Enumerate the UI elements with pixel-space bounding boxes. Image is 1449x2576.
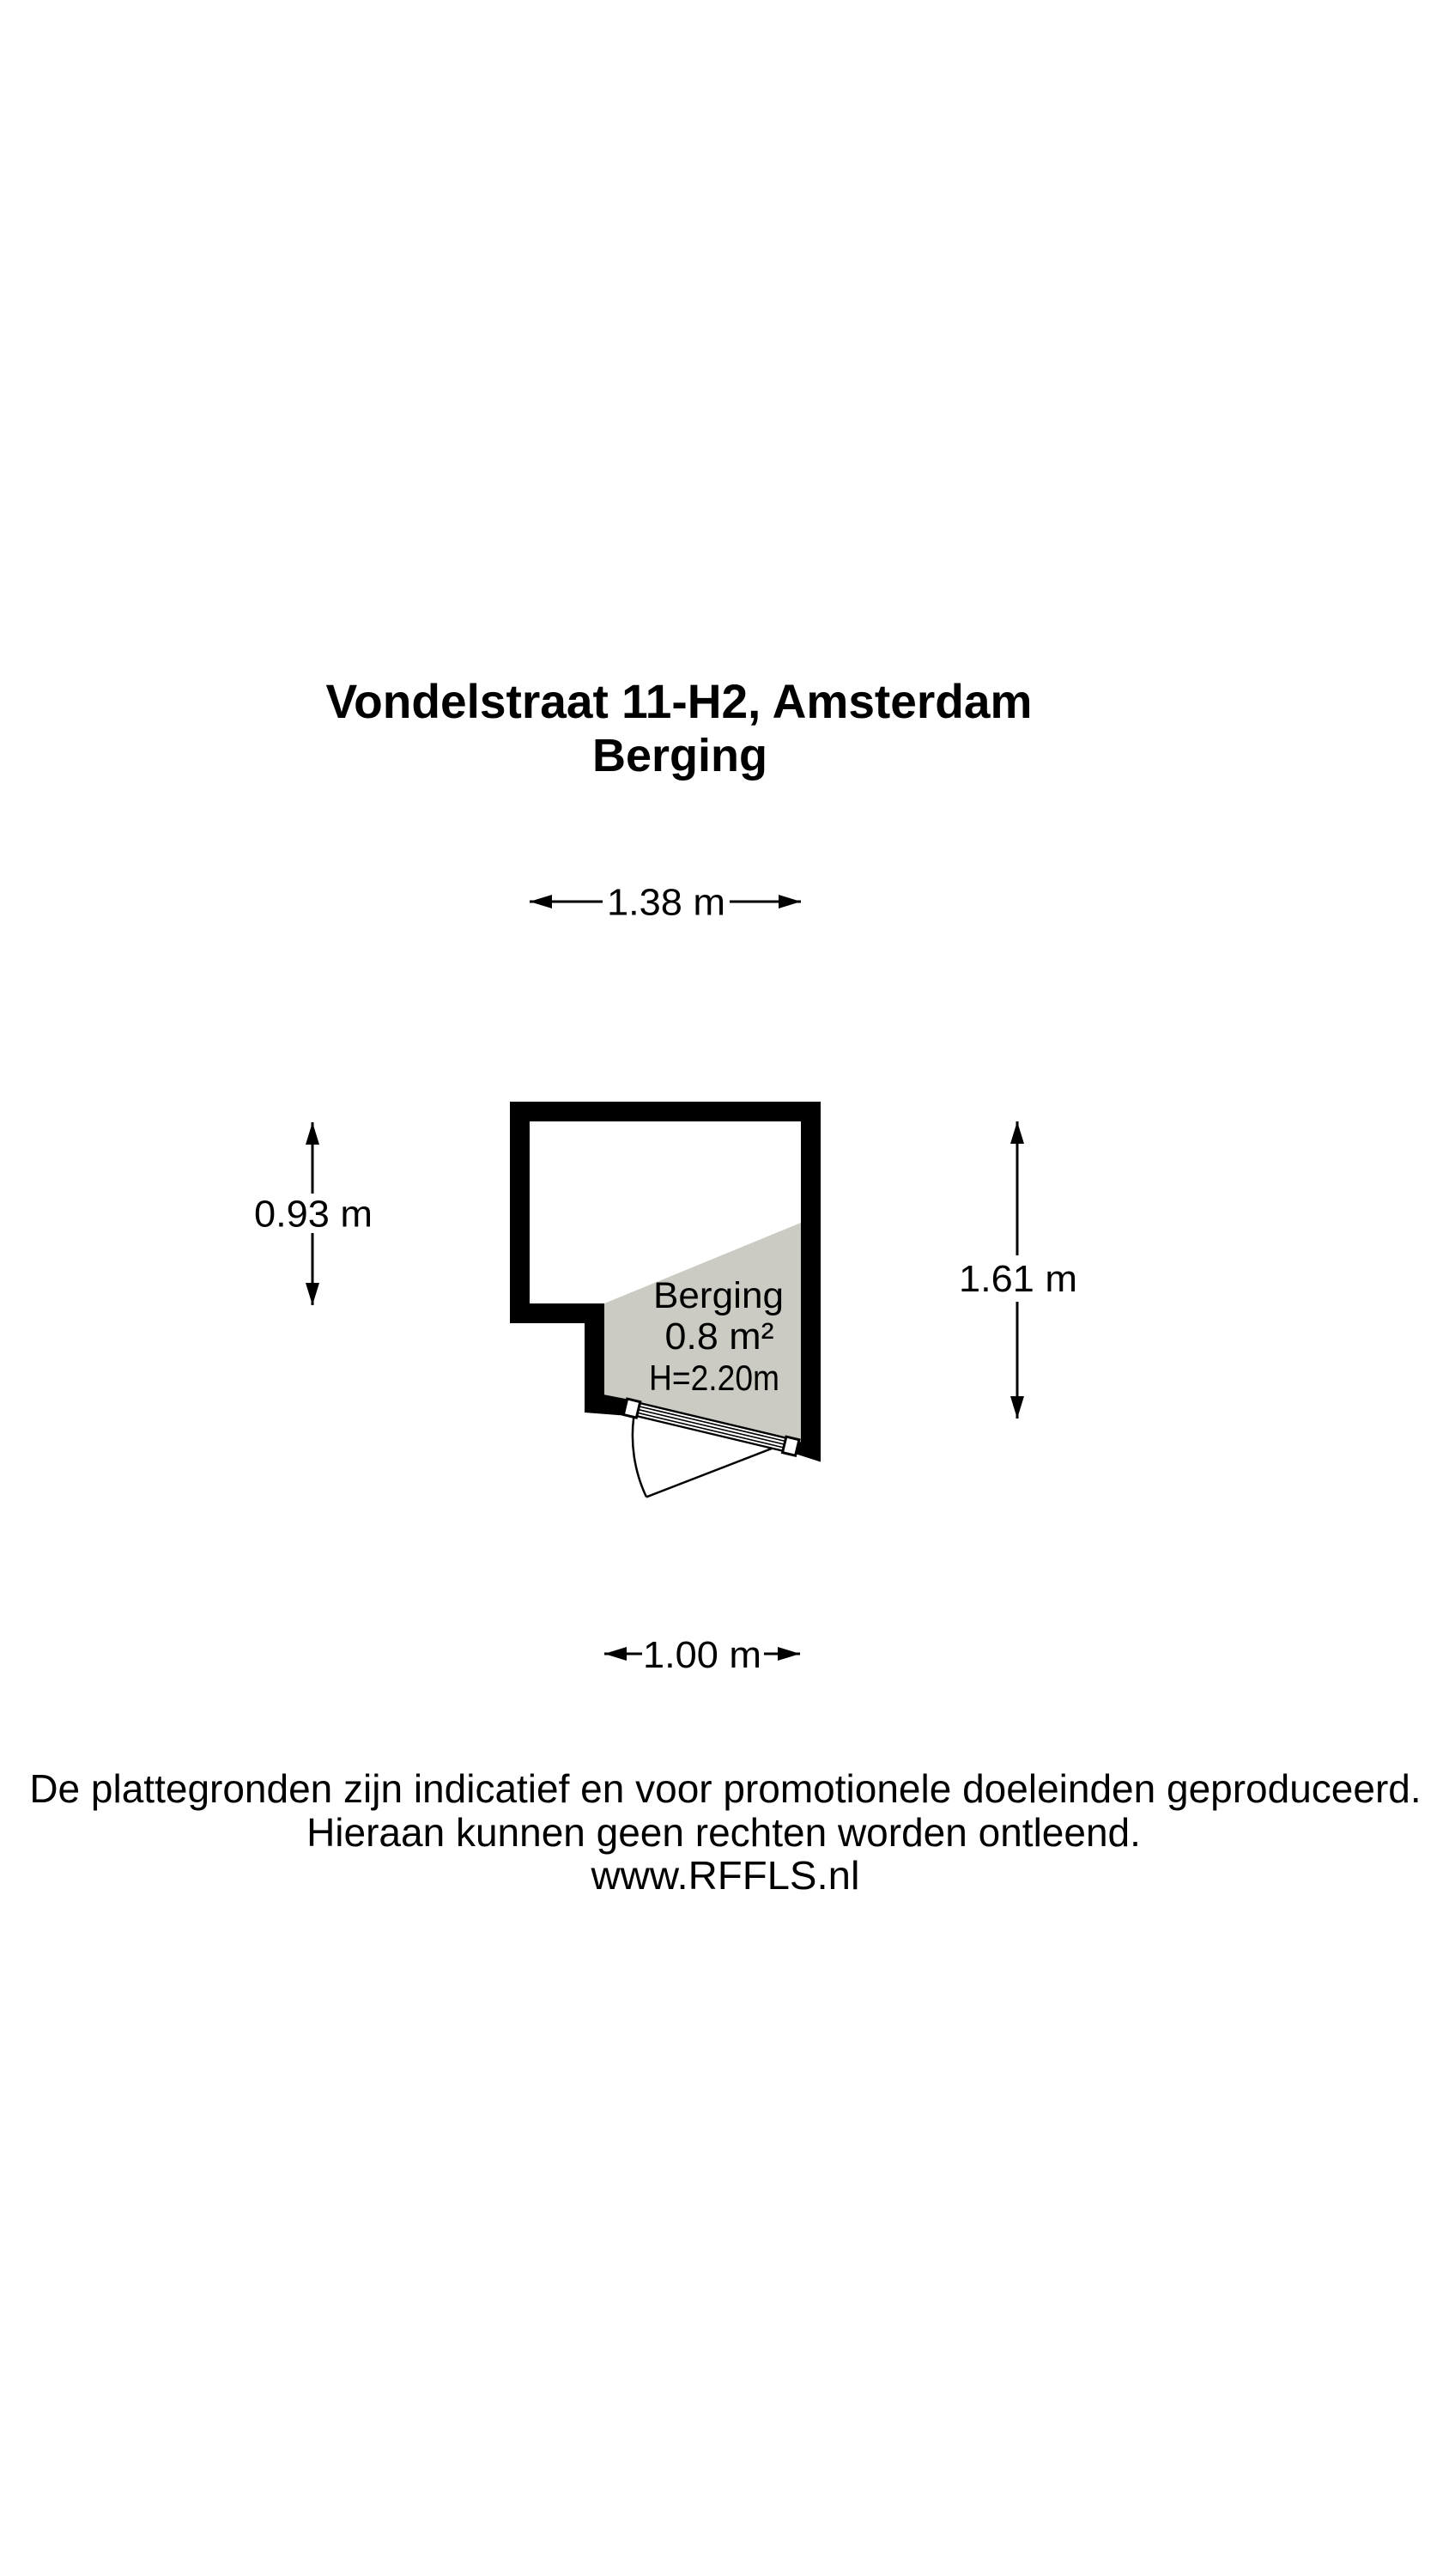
svg-text:0.93 m: 0.93 m xyxy=(254,1194,373,1236)
svg-text:Berging: Berging xyxy=(653,1276,784,1316)
svg-text:Berging: Berging xyxy=(592,730,767,781)
svg-text:0.8 m²: 0.8 m² xyxy=(665,1315,774,1358)
svg-text:1.00 m: 1.00 m xyxy=(643,1634,761,1676)
svg-text:Hieraan kunnen geen rechten wo: Hieraan kunnen geen rechten worden ontle… xyxy=(306,1810,1141,1855)
svg-text:www.RFFLS.nl: www.RFFLS.nl xyxy=(590,1853,859,1898)
svg-text:H=2.20m: H=2.20m xyxy=(649,1358,779,1398)
svg-text:1.38 m: 1.38 m xyxy=(607,882,725,924)
svg-text:Vondelstraat 11-H2, Amsterdam: Vondelstraat 11-H2, Amsterdam xyxy=(326,674,1033,728)
svg-text:De plattegronden zijn indicati: De plattegronden zijn indicatief en voor… xyxy=(29,1766,1421,1811)
svg-text:1.61 m: 1.61 m xyxy=(959,1258,1077,1300)
